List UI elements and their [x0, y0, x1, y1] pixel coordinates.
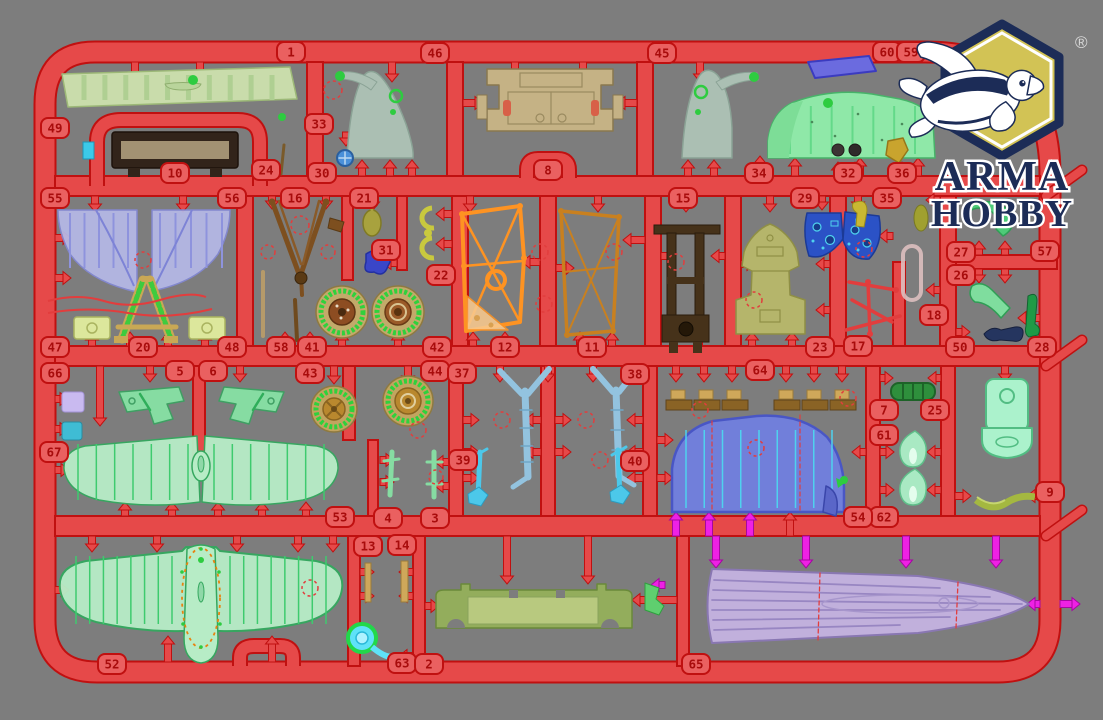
part-number-tag-29: 29: [791, 188, 819, 208]
svg-text:53: 53: [332, 510, 347, 525]
brand-name-bottom: HOBBY: [931, 193, 1073, 235]
svg-text:32: 32: [840, 166, 855, 181]
part-wheel-42a: [316, 286, 368, 338]
svg-text:40: 40: [627, 454, 642, 469]
part-seat-mint-25: [982, 379, 1032, 458]
part-number-tag-30: 30: [308, 163, 336, 183]
part-chip-cyan: [62, 422, 82, 440]
svg-text:64: 64: [752, 363, 767, 378]
part-wheel-43: [311, 386, 357, 432]
svg-text:10: 10: [167, 166, 182, 181]
part-number-tag-37: 37: [448, 363, 476, 383]
part-number-tag-32: 32: [834, 163, 862, 183]
svg-text:26: 26: [953, 268, 968, 283]
part-wheel-42b: [372, 286, 424, 338]
part-number-tag-54: 54: [844, 507, 872, 527]
svg-text:41: 41: [304, 340, 319, 355]
part-stick-41: [295, 300, 297, 340]
svg-text:21: 21: [356, 191, 371, 206]
svg-text:8: 8: [544, 163, 552, 178]
part-number-tag-21: 21: [350, 188, 378, 208]
svg-text:43: 43: [302, 366, 317, 381]
svg-text:24: 24: [258, 163, 273, 178]
part-number-tag-34: 34: [745, 163, 773, 183]
registered-mark: ®: [1075, 33, 1088, 52]
part-number-tag-26: 26: [947, 265, 975, 285]
part-number-tag-38: 38: [621, 364, 649, 384]
part-number-tag-3: 3: [421, 508, 449, 528]
part-number-tag-28: 28: [1028, 337, 1056, 357]
part-number-tag-9: 9: [1036, 482, 1064, 502]
svg-text:56: 56: [224, 191, 239, 206]
part-number-tag-53: 53: [326, 507, 354, 527]
part-number-tag-24: 24: [252, 160, 280, 180]
part-number-tag-42: 42: [423, 337, 451, 357]
svg-text:52: 52: [104, 657, 119, 672]
part-number-tag-17: 17: [844, 336, 872, 356]
part-number-tag-65: 65: [682, 654, 710, 674]
part-chip-lavender: [62, 392, 84, 412]
svg-text:54: 54: [850, 510, 865, 525]
part-figure-cyan: [83, 142, 94, 159]
part-number-tag-23: 23: [806, 337, 834, 357]
svg-text:11: 11: [584, 340, 599, 355]
svg-text:37: 37: [454, 366, 469, 381]
svg-text:20: 20: [135, 340, 150, 355]
part-number-tag-45: 45: [648, 43, 676, 63]
svg-text:13: 13: [360, 539, 375, 554]
svg-text:31: 31: [378, 243, 393, 258]
part-cylinder-green-7: [891, 383, 935, 400]
svg-text:63: 63: [394, 656, 409, 671]
part-number-tag-22: 22: [427, 265, 455, 285]
part-number-tag-6: 6: [199, 361, 227, 381]
svg-text:61: 61: [876, 428, 891, 443]
part-number-tag-52: 52: [98, 654, 126, 674]
arma-hobby-logo: ® ARMA HOBBY: [878, 12, 1100, 242]
svg-text:22: 22: [433, 268, 448, 283]
svg-text:55: 55: [47, 191, 62, 206]
svg-text:16: 16: [287, 191, 302, 206]
part-number-tag-43: 43: [296, 363, 324, 383]
svg-text:1: 1: [287, 45, 295, 60]
svg-text:6: 6: [209, 364, 217, 379]
part-number-tag-50: 50: [946, 337, 974, 357]
svg-text:9: 9: [1046, 485, 1054, 500]
part-number-tag-10: 10: [161, 163, 189, 183]
part-number-tag-40: 40: [621, 451, 649, 471]
part-number-tag-39: 39: [449, 450, 477, 470]
svg-text:67: 67: [46, 445, 61, 460]
svg-text:34: 34: [751, 166, 766, 181]
part-number-tag-62: 62: [870, 507, 898, 527]
part-number-tag-12: 12: [491, 337, 519, 357]
svg-text:25: 25: [927, 403, 942, 418]
part-number-tag-58: 58: [267, 337, 295, 357]
svg-text:58: 58: [273, 340, 288, 355]
svg-text:39: 39: [455, 453, 470, 468]
part-number-tag-4: 4: [374, 508, 402, 528]
part-number-tag-13: 13: [354, 536, 382, 556]
part-number-tag-1: 1: [277, 42, 305, 62]
part-number-tag-31: 31: [372, 240, 400, 260]
part-number-tag-56: 56: [218, 188, 246, 208]
svg-text:46: 46: [427, 46, 442, 61]
part-wing-center-2: [436, 584, 632, 628]
svg-text:28: 28: [1034, 340, 1049, 355]
part-cowl-blue-54: [672, 415, 846, 516]
part-number-tag-33: 33: [305, 114, 333, 134]
svg-text:45: 45: [654, 46, 669, 61]
part-number-tag-41: 41: [298, 337, 326, 357]
part-number-tag-49: 49: [41, 118, 69, 138]
part-number-tag-48: 48: [218, 337, 246, 357]
part-number-tag-57: 57: [1031, 241, 1059, 261]
svg-text:27: 27: [953, 245, 968, 260]
svg-text:50: 50: [952, 340, 967, 355]
svg-text:18: 18: [926, 308, 941, 323]
part-number-tag-44: 44: [421, 361, 449, 381]
part-strip-13: [365, 563, 371, 602]
svg-text:65: 65: [688, 657, 703, 672]
svg-text:66: 66: [47, 366, 62, 381]
svg-text:38: 38: [627, 367, 642, 382]
svg-text:7: 7: [880, 403, 888, 418]
part-number-tag-46: 46: [421, 43, 449, 63]
part-wheel-44: [383, 376, 433, 426]
part-knob-dark-a: [832, 144, 844, 156]
part-number-tag-63: 63: [388, 653, 416, 673]
part-number-tag-25: 25: [921, 400, 949, 420]
svg-text:5: 5: [176, 364, 184, 379]
svg-text:57: 57: [1037, 244, 1052, 259]
part-number-tag-8: 8: [534, 160, 562, 180]
svg-text:48: 48: [224, 340, 239, 355]
svg-text:62: 62: [876, 510, 891, 525]
svg-text:30: 30: [314, 166, 329, 181]
svg-text:44: 44: [427, 364, 442, 379]
svg-text:33: 33: [311, 117, 326, 132]
part-disc-blue: [337, 150, 353, 166]
svg-text:29: 29: [797, 191, 812, 206]
part-strip-14: [401, 561, 408, 602]
svg-text:47: 47: [47, 340, 62, 355]
part-number-tag-2: 2: [415, 654, 443, 674]
part-plate-48: [189, 317, 225, 339]
part-number-tag-66: 66: [41, 363, 69, 383]
part-number-tag-7: 7: [870, 400, 898, 420]
svg-text:3: 3: [431, 511, 439, 526]
part-number-tag-5: 5: [166, 361, 194, 381]
part-knob-dark-b: [849, 144, 861, 156]
svg-text:42: 42: [429, 340, 444, 355]
part-number-tag-67: 67: [40, 442, 68, 462]
part-number-tag-55: 55: [41, 188, 69, 208]
part-number-tag-15: 15: [669, 188, 697, 208]
svg-text:14: 14: [394, 538, 409, 553]
sprue-photo: 1491024333046845605934323655561621312215…: [0, 0, 1103, 720]
part-fuselage-deck-8: [477, 69, 623, 131]
svg-text:23: 23: [812, 340, 827, 355]
part-number-tag-64: 64: [746, 360, 774, 380]
part-number-tag-18: 18: [920, 305, 948, 325]
part-key-navy-50: [984, 327, 1023, 341]
part-number-tag-16: 16: [281, 188, 309, 208]
svg-text:12: 12: [497, 340, 512, 355]
svg-text:4: 4: [384, 511, 392, 526]
part-plate-47: [74, 317, 110, 339]
part-number-tag-20: 20: [129, 337, 157, 357]
svg-text:49: 49: [47, 121, 62, 136]
part-number-tag-61: 61: [870, 425, 898, 445]
svg-text:15: 15: [675, 191, 690, 206]
svg-text:17: 17: [850, 339, 865, 354]
part-number-tag-14: 14: [388, 535, 416, 555]
part-number-tag-27: 27: [947, 242, 975, 262]
part-number-tag-11: 11: [578, 337, 606, 357]
part-number-tag-47: 47: [41, 337, 69, 357]
svg-text:2: 2: [425, 657, 433, 672]
